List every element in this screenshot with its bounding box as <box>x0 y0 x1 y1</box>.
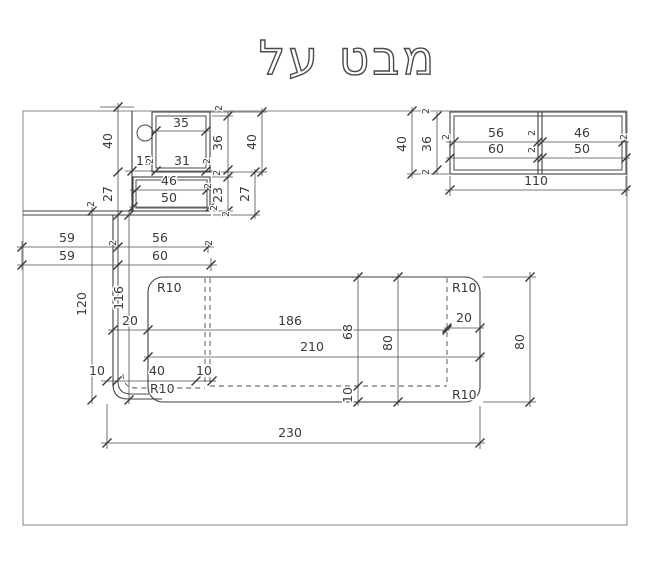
dim-lower-box-inner-width: 46 <box>161 173 177 188</box>
dim-sink-depth-left: 40 <box>100 133 115 149</box>
wall2-sink-top: 2 <box>214 105 225 111</box>
dim-lower-box-depth-right: 27 <box>237 186 252 202</box>
drawing-title: מבט על <box>259 31 438 86</box>
dim-island-depth-mid: 80 <box>380 335 395 351</box>
dim-arm-inset-left: 10 <box>89 363 105 378</box>
dim-cabinet-right-outer: 50 <box>574 141 590 156</box>
radius-top-left: R10 <box>157 280 182 295</box>
radius-top-right: R10 <box>452 280 477 295</box>
wall2-divider-upper: 2 <box>527 130 538 136</box>
dim-sink-basin-width: 31 <box>174 153 190 168</box>
dim-mid-counter-b: 60 <box>152 248 168 263</box>
wall2-cabinet-bottom: 2 <box>421 169 432 175</box>
dim-island-slab-length: 210 <box>300 339 324 354</box>
wall2-sink-bottom: 2 <box>212 170 223 176</box>
island-countertop <box>113 215 480 402</box>
wall2-divider-lower: 2 <box>527 147 538 153</box>
dim-cabinet-right-inner: 46 <box>574 125 590 140</box>
dim-island-inner-length: 186 <box>278 313 302 328</box>
wall2-lowerbox-right: 2 <box>203 183 214 189</box>
wall2-arm-top: 2 <box>86 201 97 207</box>
dim-island-depth-right: 80 <box>512 334 527 350</box>
wall2-cabinet-right: 2 <box>619 134 630 140</box>
dim-sink-inner-depth: 36 <box>210 135 225 151</box>
wall2-cabinet-left: 2 <box>441 134 452 140</box>
wall2-sink-left: 2 <box>145 158 156 164</box>
wall2-counter-line: 2 <box>221 211 232 217</box>
wall2-left-counter: 2 <box>108 240 119 246</box>
wall2-sink-right: 2 <box>202 158 213 164</box>
dim-cabinet-left-outer: 60 <box>488 141 504 156</box>
wall2-cabinet-top: 2 <box>421 108 432 114</box>
wall2-mid-counter: 2 <box>204 240 215 246</box>
dim-left-counter-b: 59 <box>59 248 75 263</box>
wall2-lowerbox-bottom: 2 <box>209 205 220 211</box>
dim-sink-depth-right: 40 <box>244 134 259 150</box>
dim-island-right-inset: 20 <box>456 310 472 325</box>
upper-right-cabinet <box>450 112 626 174</box>
dim-island-arm-inner-length: 116 <box>111 286 126 310</box>
dim-sink-inner-width: 35 <box>173 115 189 130</box>
radius-bottom-right: R10 <box>452 387 477 402</box>
faucet-hole <box>137 125 153 141</box>
dim-cabinet-left-inner: 56 <box>488 125 504 140</box>
radius-bottom-left: R10 <box>150 381 175 396</box>
dim-lower-box-depth-left: 27 <box>100 186 115 202</box>
dim-arm-inset-right: 10 <box>196 363 212 378</box>
dim-island-total-length: 230 <box>278 425 302 440</box>
top-view-plan: מבט על <box>0 0 650 562</box>
cad-drawing-canvas: מבט על <box>0 0 650 562</box>
dim-island-arm-length: 120 <box>74 292 89 316</box>
dim-island-inner-depth: 68 <box>340 324 355 340</box>
dim-island-left-inset: 20 <box>122 313 138 328</box>
dim-cabinet-inner-depth: 36 <box>419 136 434 152</box>
dim-arm-width: 40 <box>149 363 165 378</box>
dim-island-bottom-inset: 10 <box>340 387 355 403</box>
dim-mid-counter-a: 56 <box>152 230 168 245</box>
dim-cabinet-total-width: 110 <box>524 173 548 188</box>
dim-left-counter-a: 59 <box>59 230 75 245</box>
dim-cabinet-depth: 40 <box>394 136 409 152</box>
dim-lower-box-outer-width: 50 <box>161 190 177 205</box>
